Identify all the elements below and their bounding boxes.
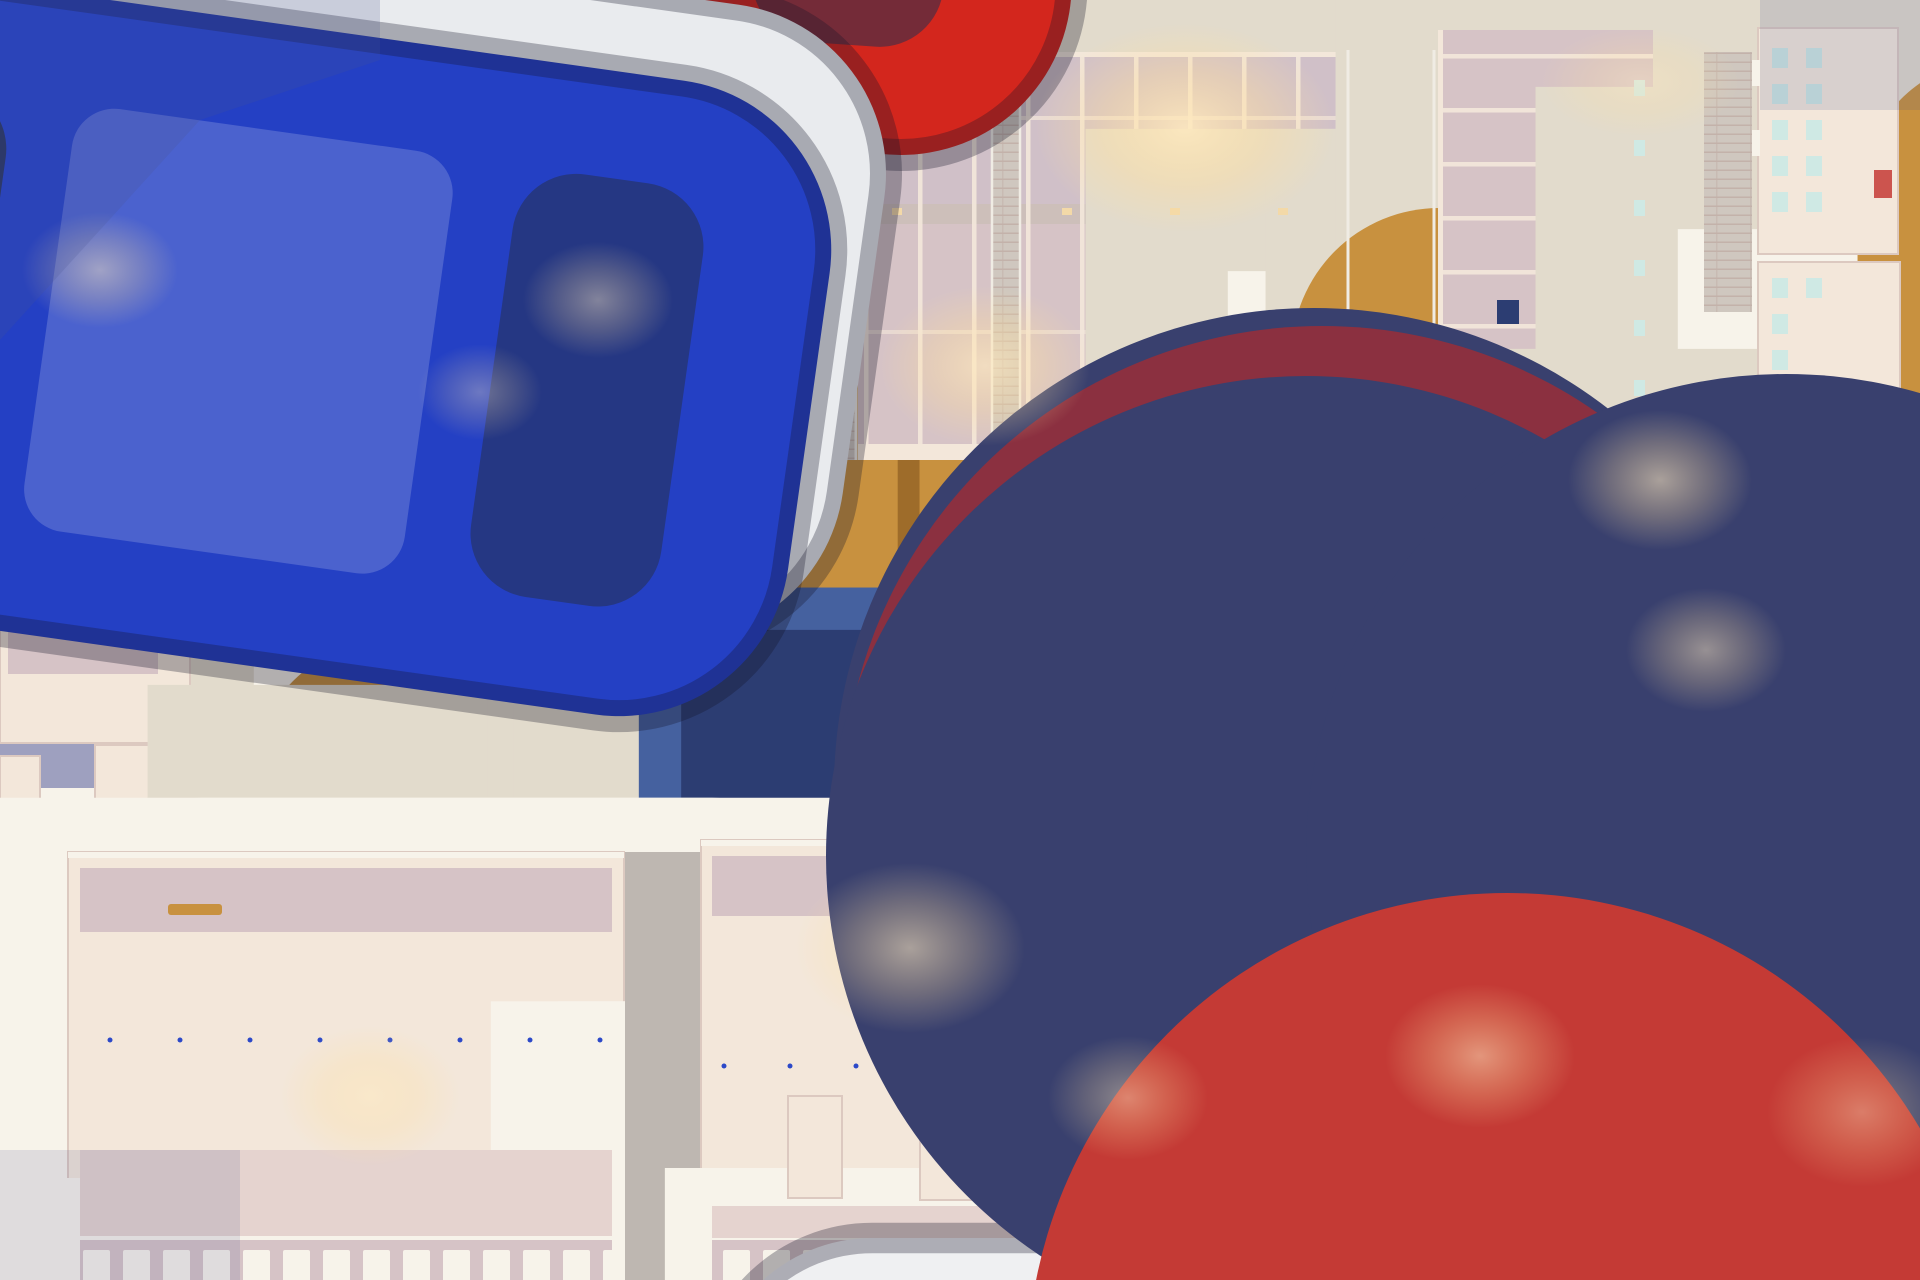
balcony: [1752, 60, 1760, 86]
parapet: [68, 852, 624, 858]
flower-planter: [1874, 170, 1892, 198]
solar-panel: [1497, 300, 1519, 324]
bench: [168, 904, 222, 915]
stair-core: [788, 1096, 842, 1198]
upper-roof: [80, 868, 612, 932]
balcony: [1752, 130, 1760, 156]
aerial-residential-complex-render: [0, 0, 1920, 1280]
